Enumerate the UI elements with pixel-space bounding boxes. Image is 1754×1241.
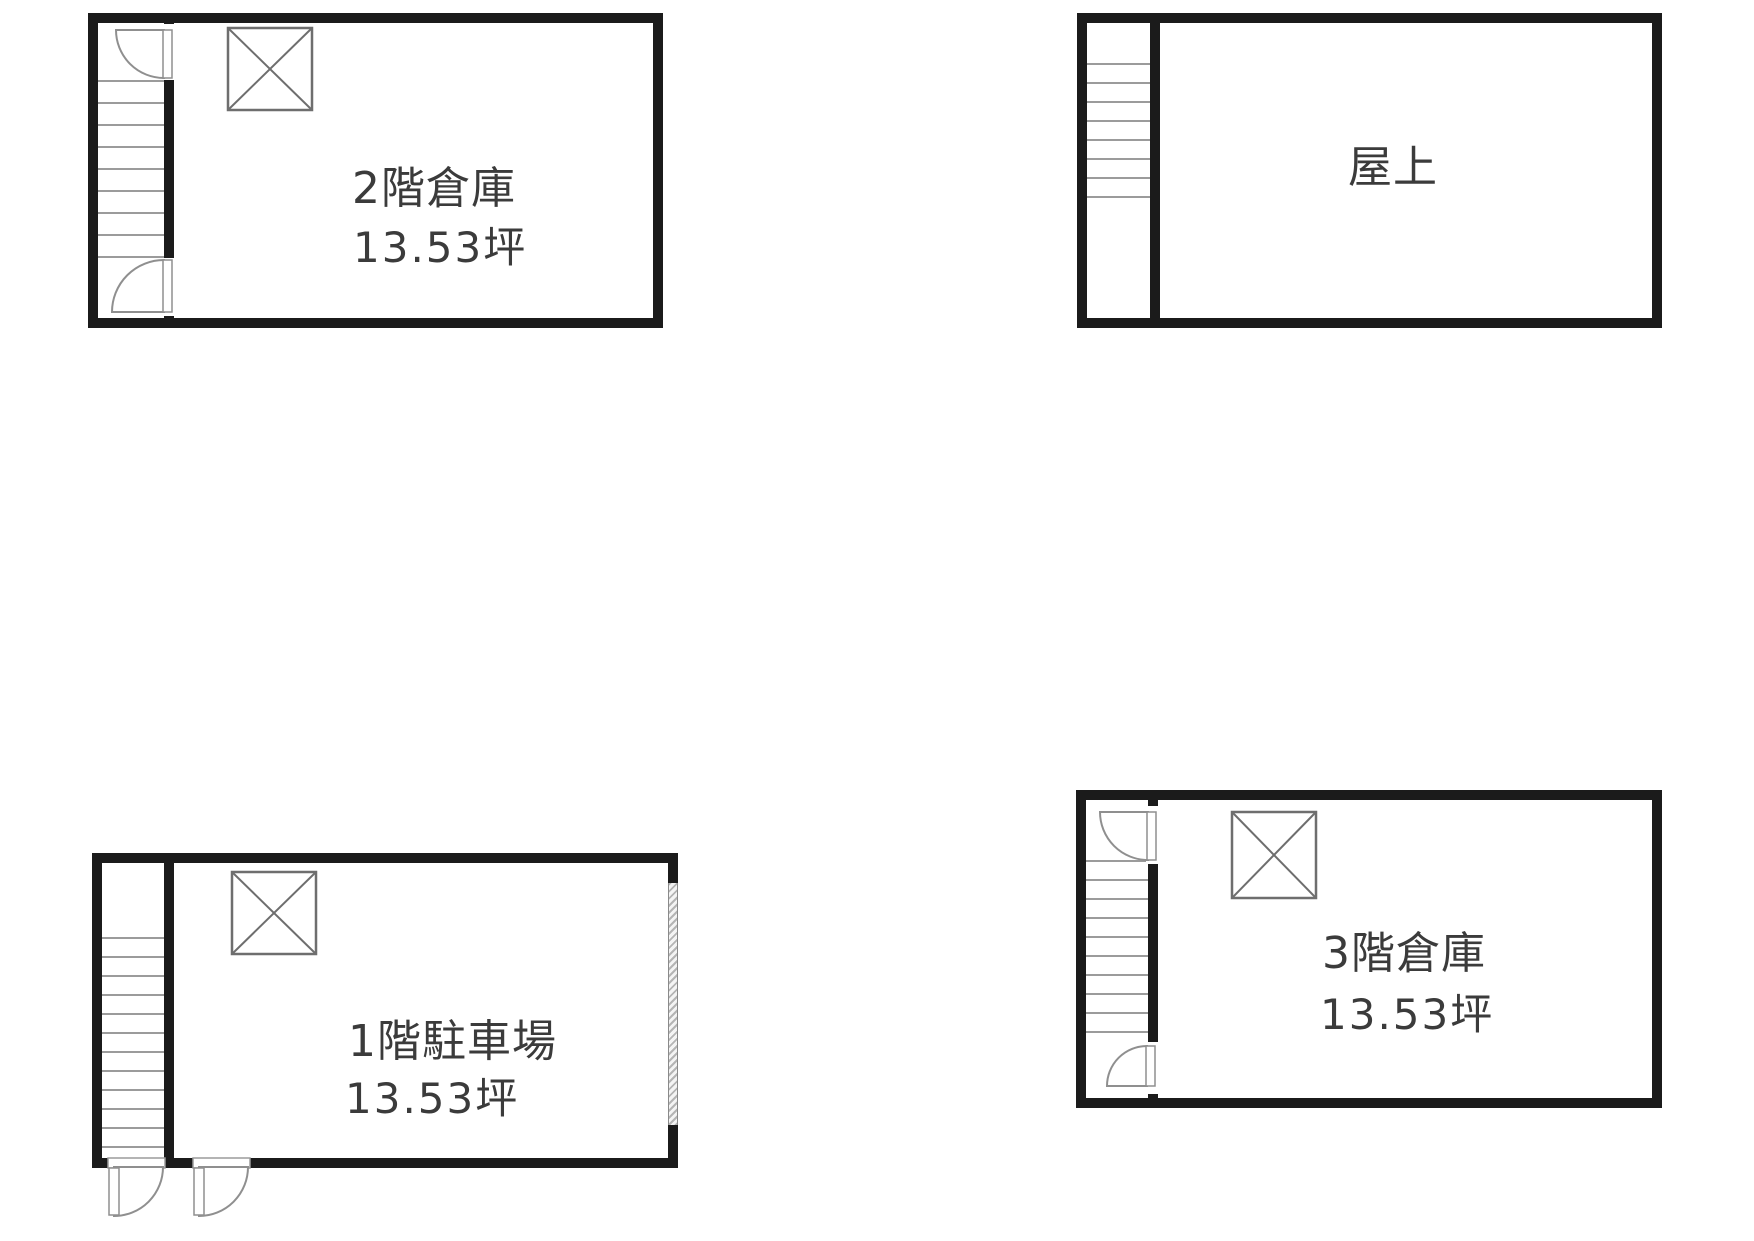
shutter-door — [668, 883, 678, 1125]
room-label: 屋上 — [1348, 146, 1438, 190]
elevator-shaft-icon — [228, 28, 312, 110]
area-label: 13.53坪 — [1320, 994, 1494, 1036]
door-swing-icon — [112, 258, 176, 316]
elevator-shaft-icon — [1232, 812, 1316, 898]
floorplan-sheet: 2階倉庫 13.53坪 屋上 — [0, 0, 1754, 1241]
area-label: 13.53坪 — [353, 227, 527, 269]
door-swing-icon — [116, 24, 176, 80]
door-swing-icon — [1107, 1042, 1159, 1094]
area-label: 13.53坪 — [345, 1078, 519, 1120]
stairwell — [1087, 23, 1160, 318]
door-swing-icon — [193, 1158, 250, 1216]
room-label: 1階駐車場 — [348, 1020, 557, 1064]
elevator-shaft-icon — [232, 872, 316, 954]
door-swing-icon — [1100, 806, 1160, 864]
room-label: 3階倉庫 — [1322, 932, 1486, 976]
door-swing-icon — [108, 1158, 165, 1216]
room-label: 2階倉庫 — [352, 167, 516, 211]
stair-treads — [1087, 63, 1150, 215]
